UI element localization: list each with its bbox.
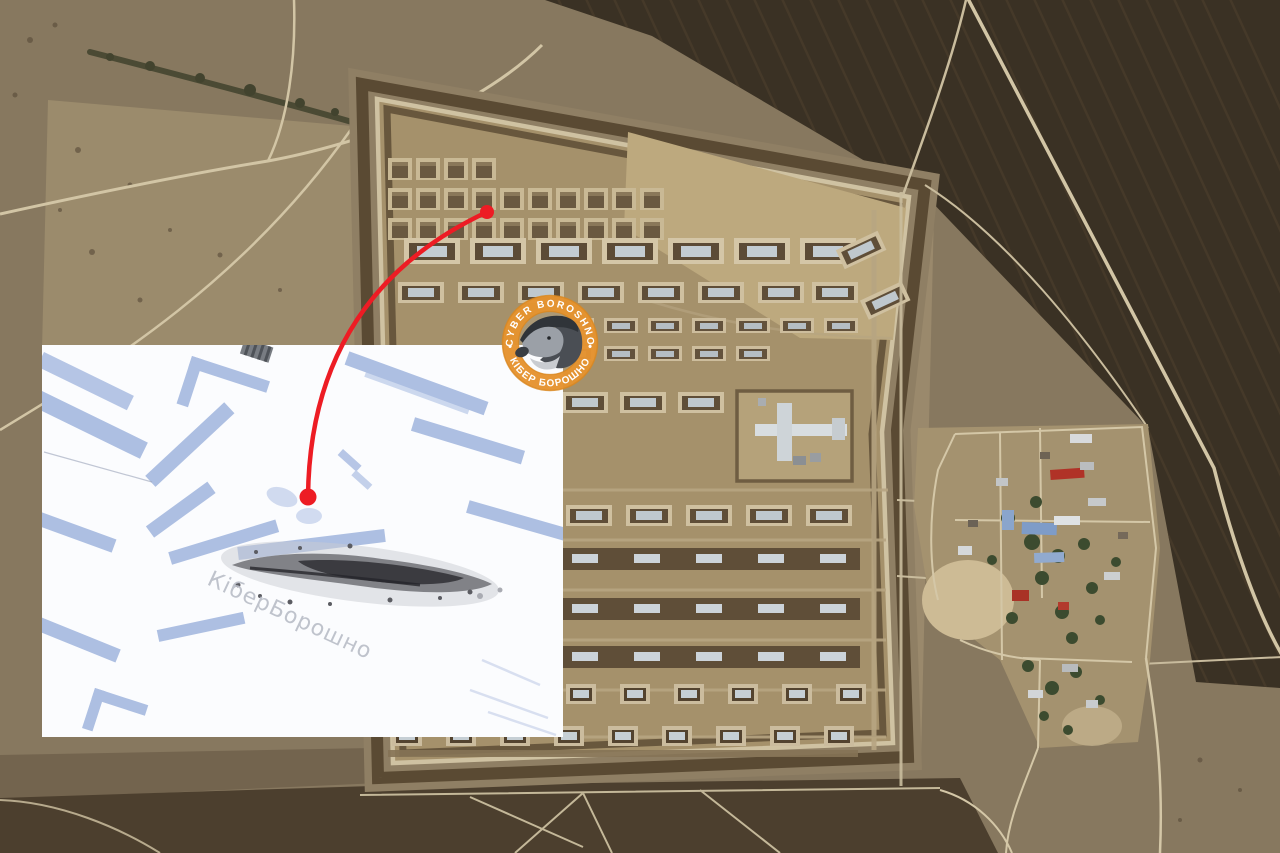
sand-patch [922, 560, 1014, 640]
bunker-row-d [566, 505, 852, 526]
long-warehouse-row [562, 392, 724, 413]
bunker-band-rows [560, 548, 860, 668]
annotated-satellite-image: КіберБорошно CYBER BOROSHNO КІБЕР БОРОШН… [0, 0, 1280, 853]
inset-image: КіберБорошно [23, 338, 570, 737]
badge-separator-left: • [508, 341, 512, 353]
callout-target-dot [300, 489, 317, 506]
watermark-badge: CYBER BOROSHNO КІБЕР БОРОШНО • • [503, 296, 598, 391]
badge-separator-right: • [588, 341, 592, 353]
light-field [42, 100, 366, 350]
satellite-scene: КіберБорошно CYBER BOROSHNO КІБЕР БОРОШН… [0, 0, 1280, 853]
callout-source-dot [480, 205, 494, 219]
inner-compound [737, 391, 852, 481]
